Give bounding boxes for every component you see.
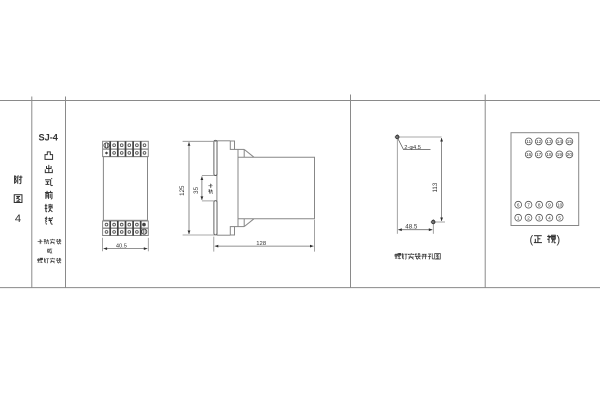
svg-text:128: 128 <box>256 241 267 247</box>
svg-text:4: 4 <box>15 213 21 225</box>
svg-text:11: 11 <box>526 139 531 144</box>
svg-text:12: 12 <box>536 139 542 144</box>
svg-text:113: 113 <box>432 182 439 192</box>
svg-text:15: 15 <box>567 139 573 144</box>
svg-text:9: 9 <box>548 203 551 208</box>
svg-text:(: ( <box>530 234 534 246</box>
svg-text:4: 4 <box>548 216 551 221</box>
svg-text:3: 3 <box>538 216 541 221</box>
svg-text:125: 125 <box>179 185 186 196</box>
svg-text:13: 13 <box>546 139 552 144</box>
svg-text:1: 1 <box>517 216 520 221</box>
svg-text:): ) <box>557 234 561 246</box>
svg-text:19: 19 <box>557 152 563 157</box>
svg-text:8: 8 <box>538 203 541 208</box>
svg-text:SJ-4: SJ-4 <box>38 132 58 142</box>
svg-text:14: 14 <box>557 139 563 144</box>
svg-text:35: 35 <box>193 186 200 193</box>
svg-text:40.5: 40.5 <box>116 244 127 250</box>
svg-text:2-φ4.5: 2-φ4.5 <box>404 145 421 151</box>
svg-text:6: 6 <box>517 203 520 208</box>
svg-text:10: 10 <box>557 203 563 208</box>
svg-text:2: 2 <box>527 216 530 221</box>
svg-text:7: 7 <box>527 203 530 208</box>
svg-text:17: 17 <box>536 152 542 157</box>
svg-text:20: 20 <box>567 152 573 157</box>
svg-text:5: 5 <box>558 216 561 221</box>
svg-text:48.5: 48.5 <box>405 224 418 231</box>
svg-text:18: 18 <box>546 152 552 157</box>
svg-text:16: 16 <box>526 152 532 157</box>
